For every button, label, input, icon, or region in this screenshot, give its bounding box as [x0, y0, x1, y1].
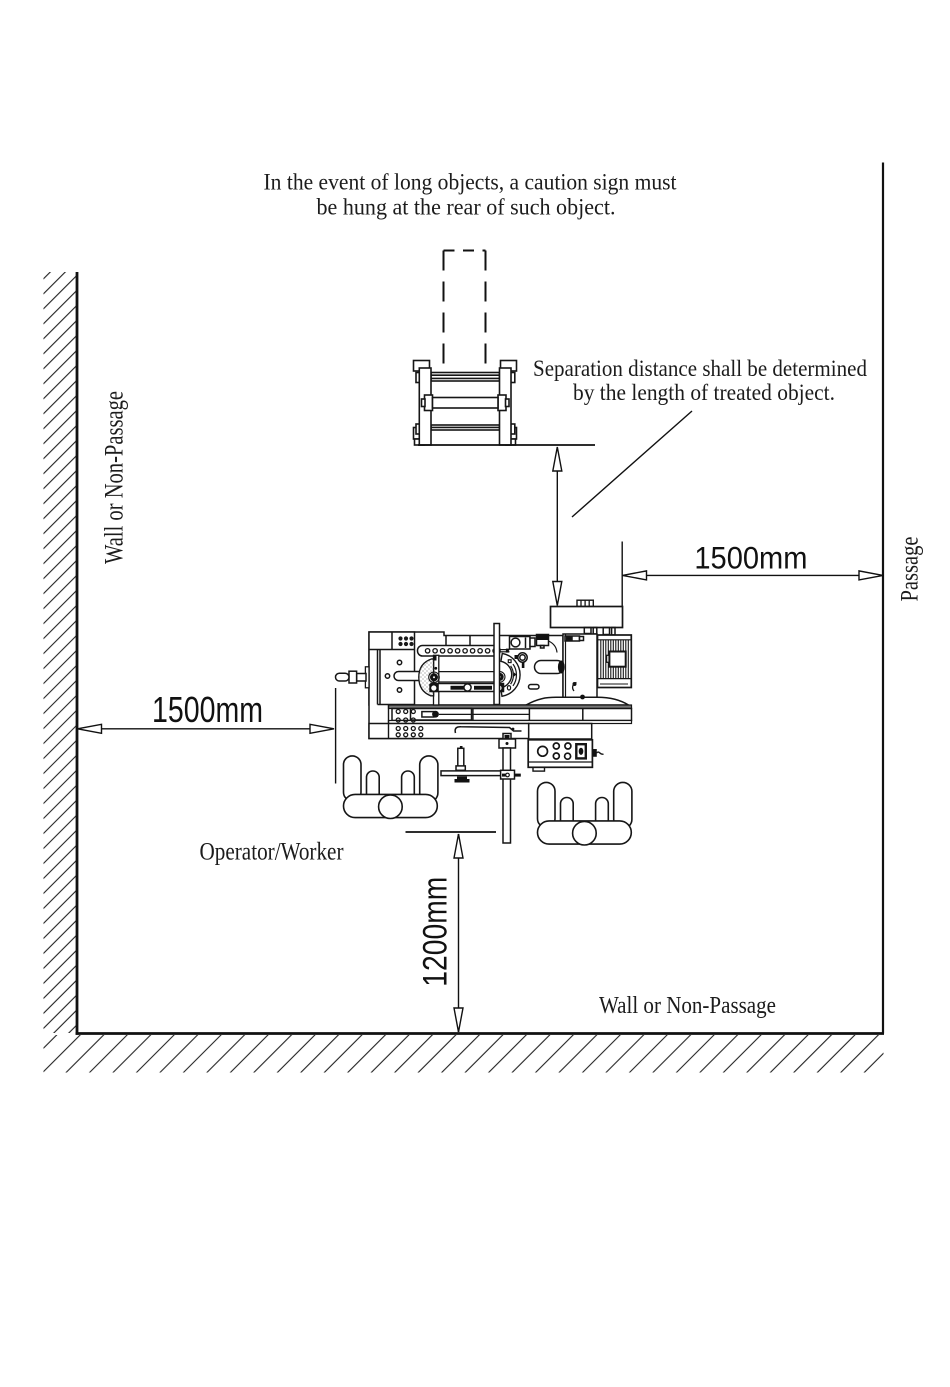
- svg-text:Separation distance shall be d: Separation distance shall be determined: [533, 356, 867, 381]
- svg-text:1200mm: 1200mm: [416, 877, 454, 987]
- svg-text:1500mm: 1500mm: [694, 539, 807, 575]
- svg-text:be hung at the rear of such ob: be hung at the rear of such object.: [317, 195, 616, 220]
- svg-text:Passage: Passage: [897, 537, 924, 602]
- svg-text:In the event of long objects,: In the event of long objects, a caution …: [264, 170, 678, 195]
- svg-text:by the length of treated objec: by the length of treated object.: [573, 380, 835, 405]
- svg-text:Operator/Worker: Operator/Worker: [200, 839, 345, 866]
- svg-text:Wall or Non-Passage: Wall or Non-Passage: [100, 391, 129, 564]
- svg-text:Wall or Non-Passage: Wall or Non-Passage: [599, 993, 776, 1019]
- svg-text:1500mm: 1500mm: [152, 689, 263, 730]
